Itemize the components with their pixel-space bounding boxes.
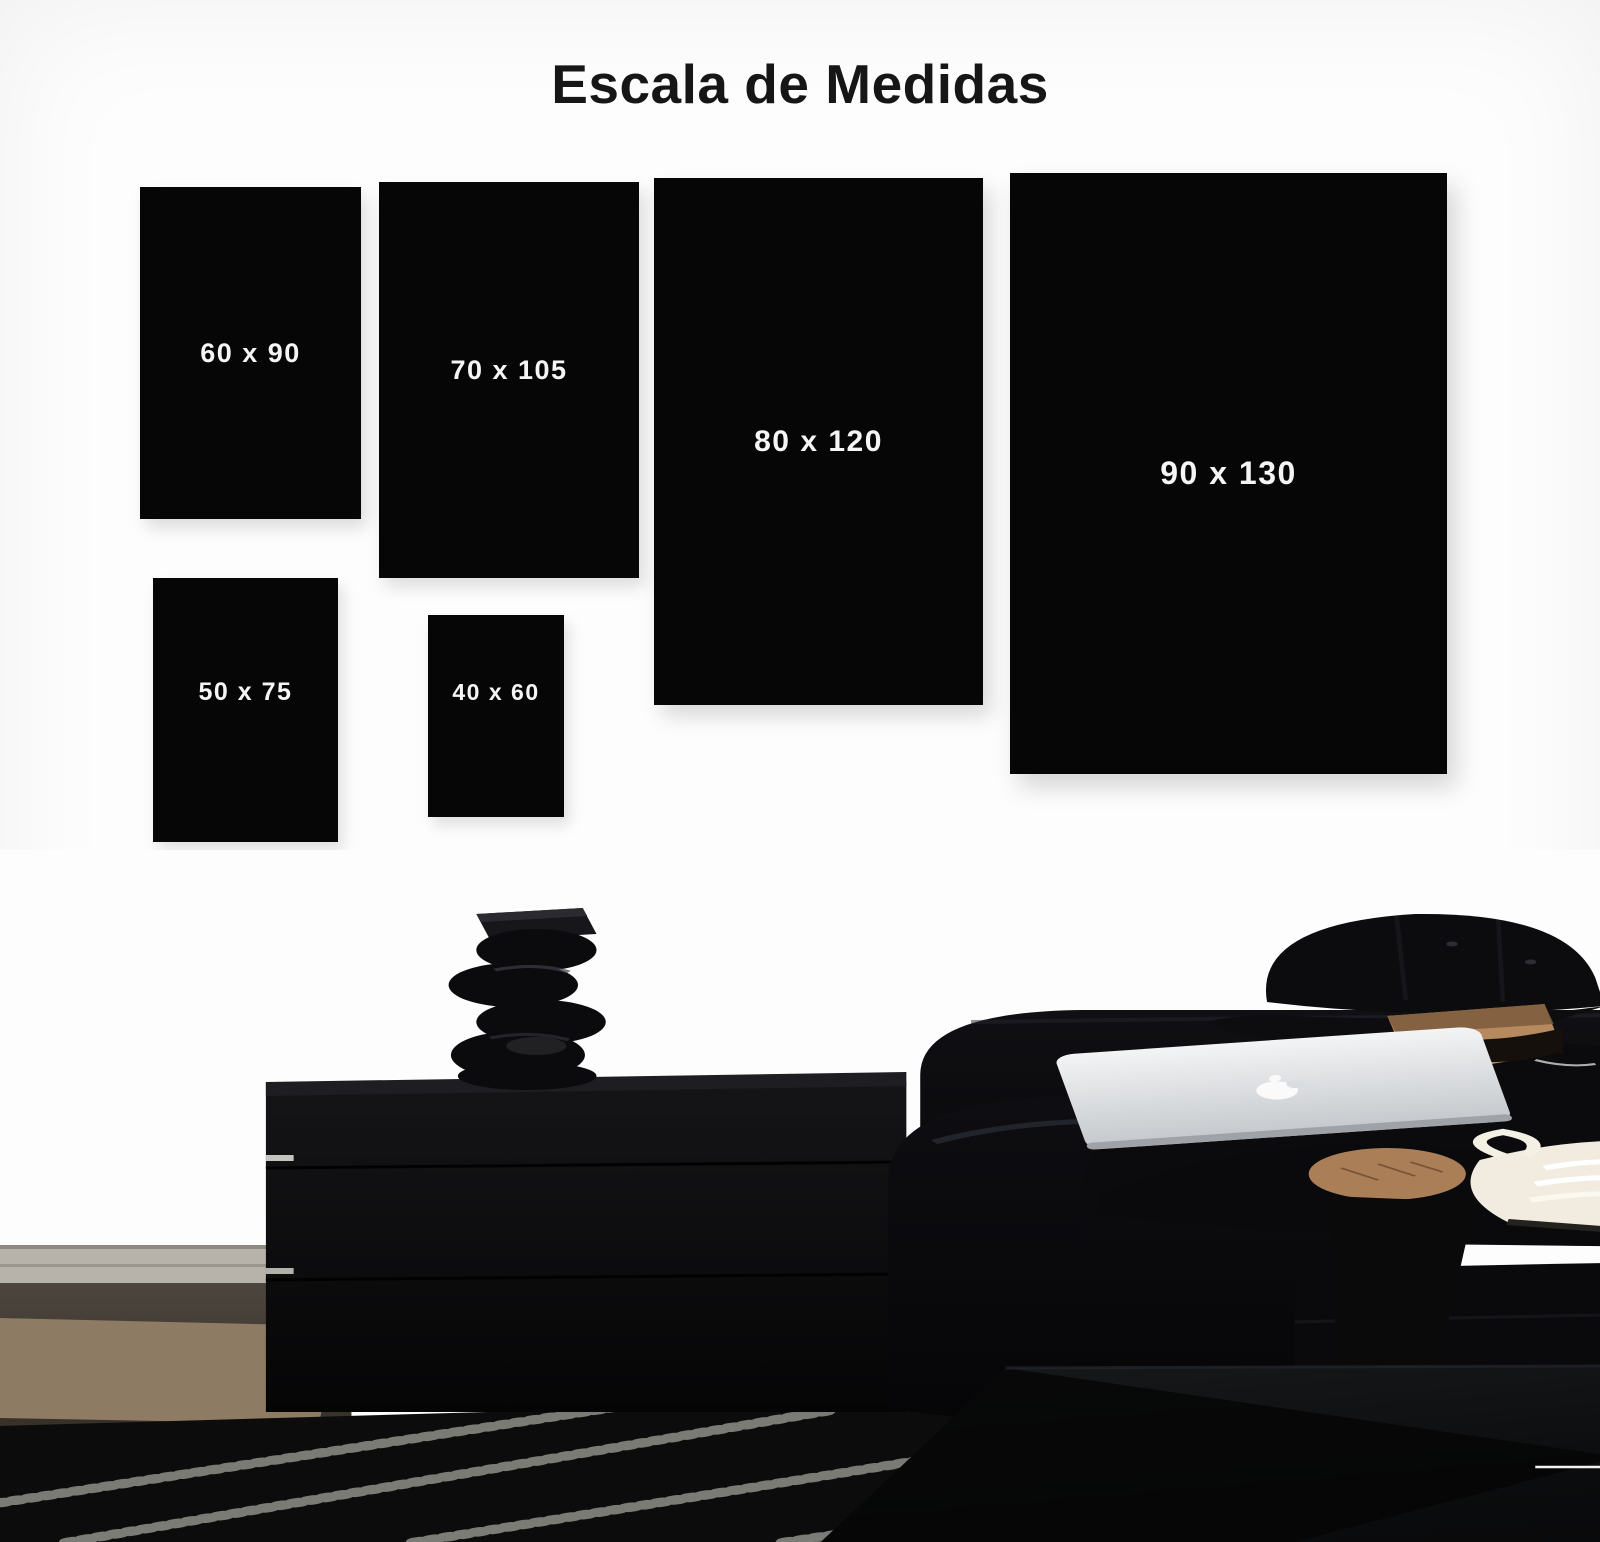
- lifestyle-photo: DESIGN: [0, 850, 1600, 1542]
- size-label: 90 x 130: [1160, 455, 1297, 492]
- size-label: 70 x 105: [450, 355, 567, 386]
- knee-skin: [1309, 1148, 1466, 1200]
- size-scale-poster: Escala de Medidas 60 x 90 70 x 105 80 x …: [0, 0, 1600, 1542]
- poster-size-70x105: 70 x 105: [379, 182, 639, 578]
- poster-size-80x120: 80 x 120: [654, 178, 983, 705]
- side-table-left: [266, 1072, 906, 1412]
- poster-size-90x130: 90 x 130: [1010, 173, 1447, 774]
- poster-size-50x75: 50 x 75: [153, 578, 338, 842]
- size-label: 50 x 75: [199, 678, 293, 707]
- poster-size-60x90: 60 x 90: [140, 187, 361, 519]
- size-label: 80 x 120: [754, 425, 883, 459]
- poster-size-40x60: 40 x 60: [428, 615, 564, 817]
- size-label: 40 x 60: [452, 679, 539, 706]
- size-label: 60 x 90: [200, 338, 301, 369]
- page-title: Escala de Medidas: [0, 52, 1600, 116]
